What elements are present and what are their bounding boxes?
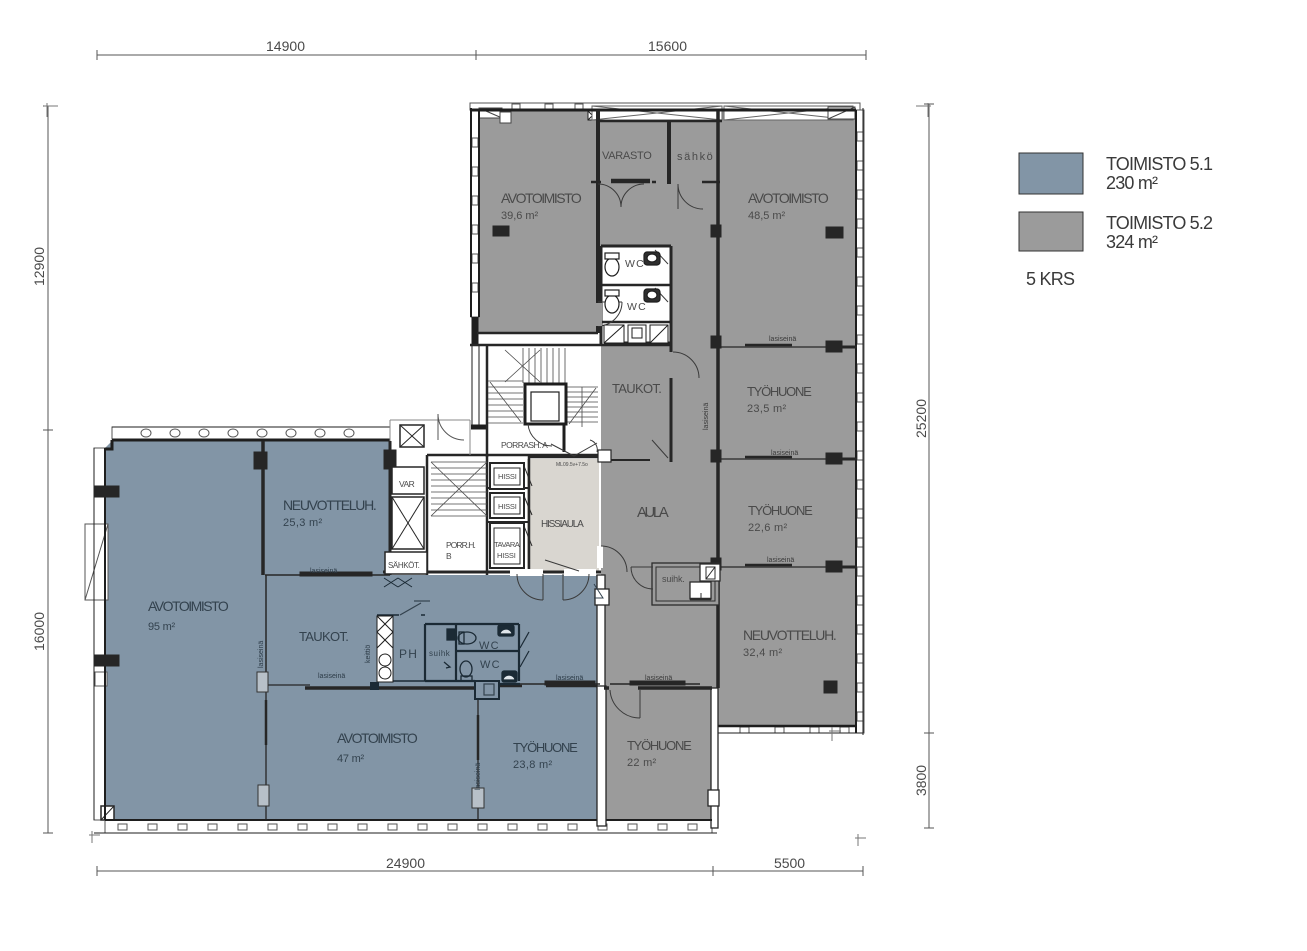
svg-text:22,6 m²: 22,6 m² <box>748 522 788 534</box>
svg-text:WC: WC <box>627 301 647 313</box>
svg-text:WC: WC <box>479 640 500 652</box>
svg-text:TYÖHUONE: TYÖHUONE <box>748 503 814 518</box>
svg-text:25200: 25200 <box>913 398 929 438</box>
svg-text:NEUVOTTELUH.: NEUVOTTELUH. <box>743 627 838 643</box>
svg-text:lasiseinä: lasiseinä <box>771 450 798 457</box>
svg-text:25,3 m²: 25,3 m² <box>283 517 323 529</box>
svg-text:PORRASH. A: PORRASH. A <box>501 440 549 450</box>
svg-text:B: B <box>446 551 453 561</box>
svg-text:TYÖHUONE: TYÖHUONE <box>513 740 579 755</box>
svg-text:AVOTOIMISTO: AVOTOIMISTO <box>501 190 583 206</box>
svg-text:NEUVOTTELUH.: NEUVOTTELUH. <box>283 497 378 513</box>
svg-text:14900: 14900 <box>266 38 306 54</box>
svg-text:PORR.H.: PORR.H. <box>446 540 477 550</box>
svg-text:lasiseinä: lasiseinä <box>556 675 583 682</box>
svg-text:lasiseinä: lasiseinä <box>310 568 337 575</box>
svg-text:95 m²: 95 m² <box>148 621 176 633</box>
svg-text:lasiseinä: lasiseinä <box>475 763 482 790</box>
svg-text:TAUKOT.: TAUKOT. <box>299 629 350 644</box>
svg-text:15600: 15600 <box>648 38 688 54</box>
svg-text:lasiseinä: lasiseinä <box>767 557 794 564</box>
svg-text:24900: 24900 <box>386 855 426 871</box>
svg-text:TYÖHUONE: TYÖHUONE <box>627 738 693 753</box>
svg-text:AVOTOIMISTO: AVOTOIMISTO <box>337 730 419 746</box>
svg-text:sähkö: sähkö <box>677 151 714 163</box>
svg-text:23,5 m²: 23,5 m² <box>747 403 787 415</box>
svg-text:VAR: VAR <box>399 479 416 489</box>
svg-text:HISSI: HISSI <box>498 502 518 511</box>
svg-text:keittiö: keittiö <box>365 645 372 663</box>
svg-text:HISSI: HISSI <box>497 551 517 560</box>
svg-text:TYÖHUONE: TYÖHUONE <box>747 384 813 399</box>
svg-text:ML09.5v+7.5o: ML09.5v+7.5o <box>556 462 588 468</box>
svg-text:WC: WC <box>480 659 501 671</box>
svg-text:AULA: AULA <box>637 504 670 521</box>
svg-text:lasiseinä: lasiseinä <box>318 673 345 680</box>
svg-text:HISSIAULA: HISSIAULA <box>541 519 585 530</box>
svg-text:47 m²: 47 m² <box>337 753 365 765</box>
svg-text:SÄHKÖT.: SÄHKÖT. <box>388 561 421 570</box>
svg-text:22 m²: 22 m² <box>627 757 657 769</box>
svg-text:TAUKOT.: TAUKOT. <box>612 381 663 396</box>
svg-text:324 m²: 324 m² <box>1106 232 1158 252</box>
svg-text:suihk.: suihk. <box>662 574 686 584</box>
svg-text:HISSI: HISSI <box>498 472 518 481</box>
svg-text:23,8 m²: 23,8 m² <box>513 759 553 771</box>
svg-text:lasiseinä: lasiseinä <box>703 403 710 430</box>
svg-text:5500: 5500 <box>774 855 806 871</box>
svg-text:AVOTOIMISTO: AVOTOIMISTO <box>748 190 830 206</box>
svg-text:TOIMISTO 5.2: TOIMISTO 5.2 <box>1106 213 1213 233</box>
svg-text:PH: PH <box>399 647 418 661</box>
svg-text:suihk: suihk <box>429 649 451 658</box>
svg-text:3800: 3800 <box>913 764 929 796</box>
svg-text:230 m²: 230 m² <box>1106 173 1158 193</box>
svg-text:5 KRS: 5 KRS <box>1026 269 1075 289</box>
svg-text:48,5 m²: 48,5 m² <box>748 210 786 222</box>
svg-text:TOIMISTO 5.1: TOIMISTO 5.1 <box>1106 154 1213 174</box>
svg-text:TAVARA: TAVARA <box>494 540 521 549</box>
svg-text:WC: WC <box>625 258 645 270</box>
svg-text:lasiseinä: lasiseinä <box>645 675 672 682</box>
svg-text:VARASTO: VARASTO <box>602 150 653 162</box>
svg-text:12900: 12900 <box>31 246 47 286</box>
svg-text:16000: 16000 <box>31 611 47 651</box>
svg-text:lasiseinä: lasiseinä <box>258 641 265 668</box>
svg-text:lasiseinä: lasiseinä <box>769 336 796 343</box>
svg-text:39,6 m²: 39,6 m² <box>501 210 539 222</box>
svg-text:AVOTOIMISTO: AVOTOIMISTO <box>148 598 230 614</box>
svg-text:32,4 m²: 32,4 m² <box>743 647 783 659</box>
